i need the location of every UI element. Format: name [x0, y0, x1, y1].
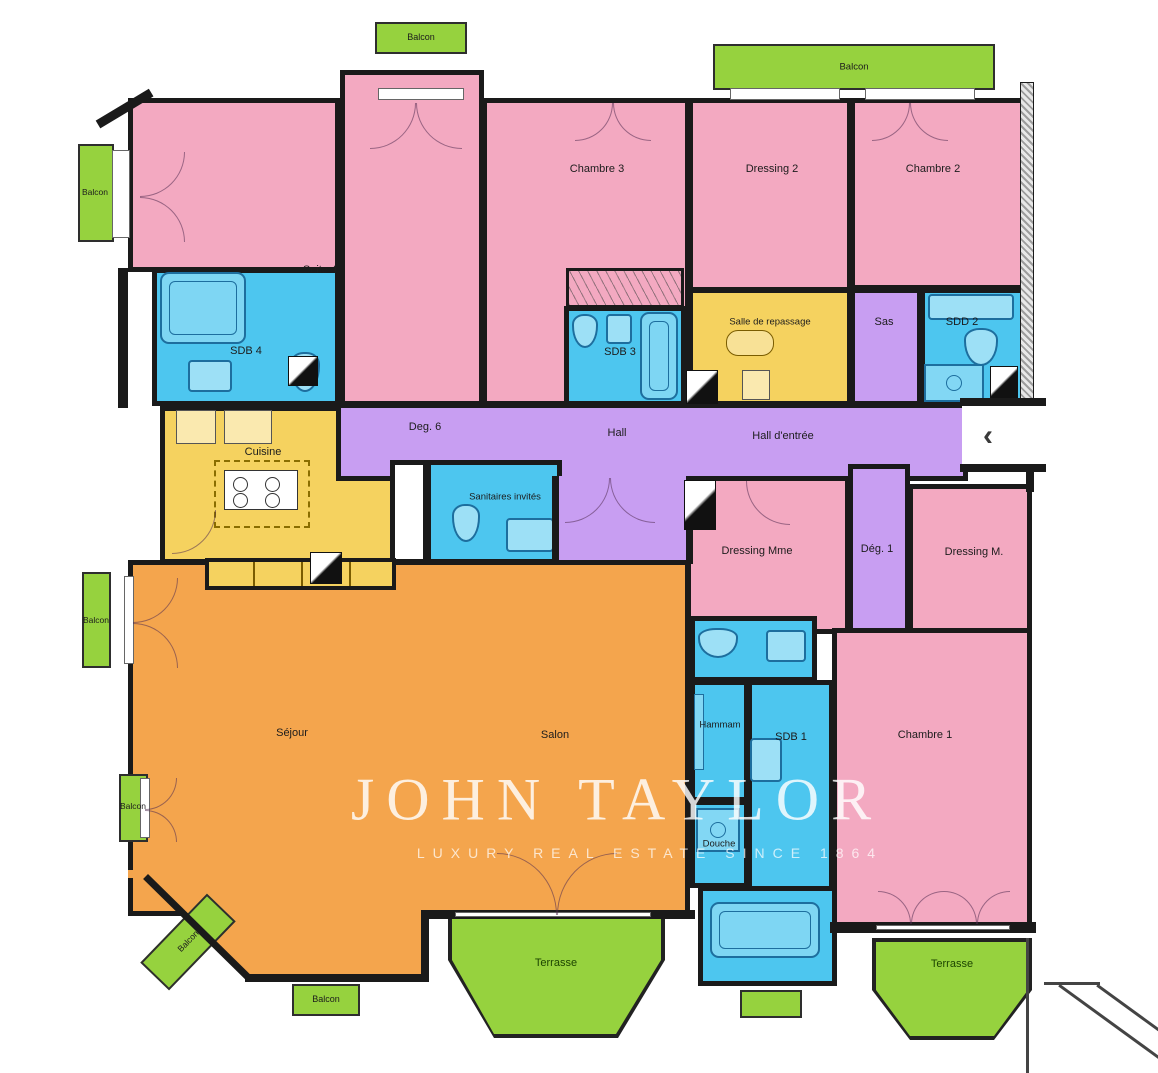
balcony-patch	[740, 990, 802, 1018]
label-salle-de-repassage: Salle de repassage	[729, 317, 810, 328]
label-sdb3: SDB 3	[604, 346, 636, 358]
bench-icon	[694, 694, 704, 770]
shower-icon	[924, 364, 984, 402]
label-sdb4: SDB 4	[230, 345, 262, 357]
window	[876, 925, 1010, 930]
label-balcon-left-lower: Balcon	[120, 801, 146, 811]
sink-icon	[766, 630, 806, 662]
laundry-unit-icon	[742, 370, 770, 400]
label-deg1: Dég. 1	[861, 543, 893, 555]
appliance-icon	[176, 410, 216, 444]
wardrobe-icon	[566, 268, 684, 308]
window	[730, 88, 840, 100]
label-sdb1: SDB 1	[775, 731, 807, 743]
cabinet-divider	[349, 562, 351, 586]
label-dressing-m: Dressing M.	[945, 546, 1004, 558]
wall-hatch-right	[1020, 82, 1034, 404]
window	[865, 88, 975, 100]
label-hall-entree: Hall d'entrée	[752, 430, 813, 442]
level-marker-icon	[990, 366, 1018, 398]
label-suite4: Suite 4	[303, 264, 337, 276]
wall-entrance-top	[960, 398, 1046, 406]
label-hall: Hall	[608, 427, 627, 439]
room-closet	[390, 460, 428, 564]
bathtub-icon	[160, 272, 246, 344]
cabinet-divider	[301, 562, 303, 586]
bathtub-icon	[710, 902, 820, 958]
entrance-chevron: ‹	[983, 419, 993, 453]
room-dressing-m	[908, 484, 1032, 634]
wall-segment	[421, 910, 429, 982]
label-sanitaires: Sanitaires invités	[469, 492, 541, 503]
cabinet-divider	[253, 562, 255, 586]
stair-line	[1026, 938, 1029, 1073]
label-balcon-left-mid: Balcon	[83, 615, 109, 625]
label-chambre1: Chambre 1	[898, 729, 952, 741]
label-salon: Salon	[541, 729, 569, 741]
stair-line	[1044, 982, 1100, 985]
label-dressing2: Dressing 2	[746, 163, 799, 175]
bathtub-icon	[640, 312, 678, 400]
room-sdb1	[747, 680, 834, 892]
label-chambre3: Chambre 3	[570, 163, 624, 175]
label-sas: Sas	[875, 316, 894, 328]
label-balcon-bottom: Balcon	[312, 994, 340, 1004]
label-dressing-mme: Dressing Mme	[722, 545, 793, 557]
sink-icon	[606, 314, 632, 344]
level-marker-icon	[288, 356, 318, 386]
room-sas	[850, 288, 922, 406]
entrance-recess	[962, 406, 1044, 464]
label-cuisine: Cuisine	[245, 446, 282, 458]
terrace-right	[872, 938, 1032, 1046]
sink-icon	[188, 360, 232, 392]
room-chambre1	[832, 628, 1032, 928]
label-chambre2: Chambre 2	[906, 163, 960, 175]
window	[378, 88, 464, 100]
floor-plan: Suite 4 SDB 4 Chambre 3 SDB 3 Dressing 2…	[0, 0, 1158, 1073]
vanity-icon	[750, 738, 782, 782]
level-marker-icon	[686, 370, 718, 404]
level-marker-icon	[684, 480, 716, 530]
appliance-icon	[224, 410, 272, 444]
hob-icon	[224, 470, 298, 510]
terrace-right-floor	[876, 942, 1028, 1042]
label-terrasse-center: Terrasse	[535, 957, 577, 969]
label-terrasse-right: Terrasse	[931, 958, 973, 970]
ironing-board-icon	[726, 330, 774, 356]
label-deg6: Deg. 6	[409, 421, 441, 433]
sink-icon	[506, 518, 554, 552]
label-balcon-left-upper: Balcon	[82, 187, 108, 197]
label-douche: Douche	[703, 839, 736, 850]
label-sdd2: SDD 2	[946, 316, 978, 328]
stair-line	[1058, 984, 1158, 1073]
wall-segment	[1026, 464, 1034, 492]
wall-segment	[118, 268, 128, 408]
label-sejour: Séjour	[276, 727, 308, 739]
label-balcon-top-small: Balcon	[407, 32, 435, 42]
room-dressing2	[688, 98, 852, 292]
terrace-center-floor	[452, 918, 661, 1040]
level-marker-icon	[310, 552, 342, 584]
label-balcon-top-right: Balcon	[839, 62, 868, 73]
window	[112, 150, 130, 238]
terrace-center	[448, 914, 665, 1044]
label-hammam: Hammam	[699, 720, 740, 731]
wall-segment	[552, 476, 559, 564]
wall-segment	[245, 974, 429, 982]
